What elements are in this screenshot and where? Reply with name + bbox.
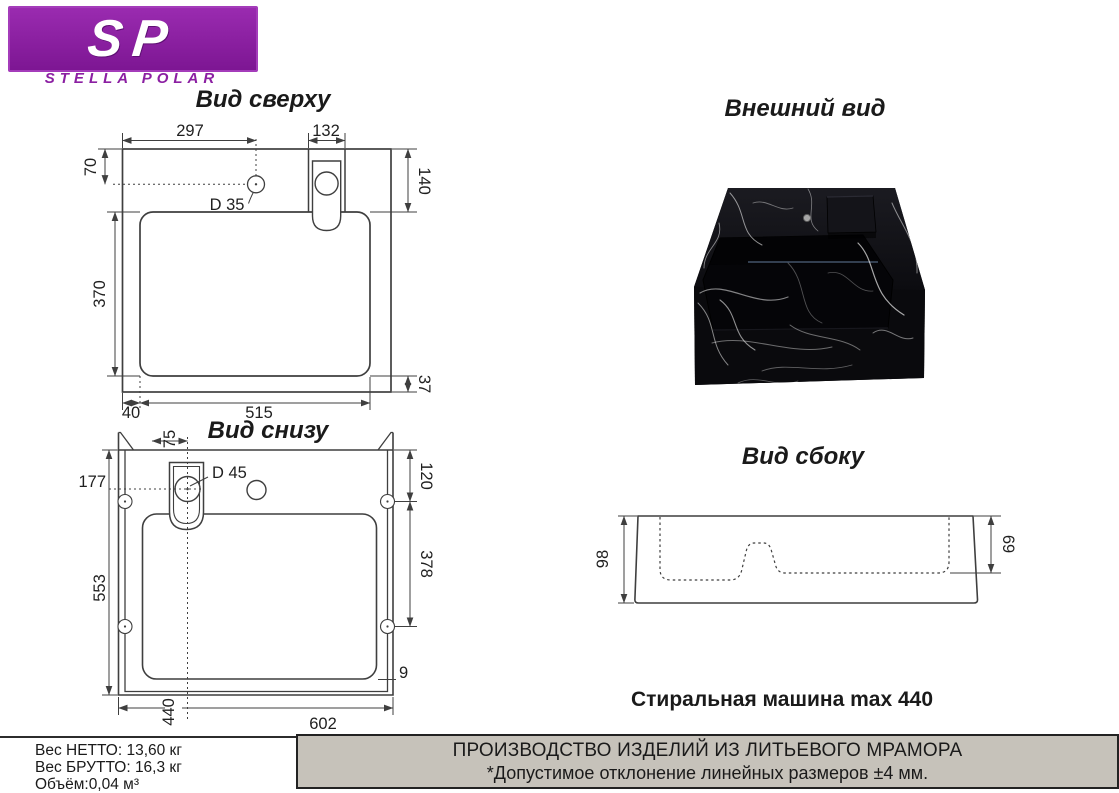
dim-37: 37 [415,375,433,393]
dim-140: 140 [415,167,433,195]
side-view-dimension-labels: 98 69 [594,535,1017,568]
dim-9: 9 [399,664,408,682]
dim-d35: D 35 [210,196,245,214]
sink-bottom-outer-edge [119,433,394,696]
side-view-dimension-lines [618,516,1001,603]
mounting-holes [118,495,395,634]
dim-120: 120 [417,462,435,490]
top-view-outline [123,149,392,392]
production-text: ПРОИЗВОДСТВО ИЗДЕЛИЙ ИЗ ЛИТЬЕВОГО МРАМОР… [453,740,963,762]
dim-553: 553 [91,574,109,602]
dim-378: 378 [417,550,435,578]
dim-515: 515 [245,404,273,422]
side-view-drawing: 98 69 [594,516,1017,603]
dim-177: 177 [78,473,106,491]
production-panel: ПРОИЗВОДСТВО ИЗДЕЛИЙ ИЗ ЛИТЬЕВОГО МРАМОР… [296,734,1119,789]
dim-297: 297 [176,122,204,140]
faucet-deck-shadow [828,232,876,239]
sink-photo [694,188,925,385]
basin-shadow [710,235,880,265]
volume: Объём:0,04 м³ [35,776,296,793]
technical-drawing-canvas: 297 132 70 140 370 37 40 515 D 35 [0,0,1119,789]
tolerance-text: *Допустимое отклонение линейных размеров… [487,763,928,784]
bottom-view-outline [118,433,395,696]
dim-98: 98 [594,550,612,568]
dim-40: 40 [122,404,140,422]
hole-d35-center [255,183,257,185]
dim-440: 440 [160,698,178,726]
basin-edge [140,212,370,376]
basin-depth-profile [660,517,949,580]
dim-75: 75 [161,430,179,448]
dim-70: 70 [82,158,100,176]
gross-weight: Вес БРУТТО: 16,3 кг [35,759,296,776]
dim-602: 602 [309,715,337,733]
top-view-dimension-labels: 297 132 70 140 370 37 40 515 D 35 [82,122,433,422]
side-profile-outline [635,516,978,603]
overflow-hole [247,481,266,500]
basin-footprint [143,514,377,679]
dim-132: 132 [312,122,340,140]
weight-info-block: Вес НЕТТО: 13,60 кг Вес БРУТТО: 16,3 кг … [0,736,296,789]
faucet-hole [315,172,338,195]
dim-69: 69 [999,535,1017,553]
faucet-deck [827,196,876,233]
bottom-view-dimension-labels: 75 120 378 177 D 45 553 9 440 602 [78,430,435,733]
bottom-view-drawing: 75 120 378 177 D 45 553 9 440 602 [78,430,435,733]
deck-drain-dot [803,214,810,221]
dim-d45: D 45 [212,464,247,482]
net-weight: Вес НЕТТО: 13,60 кг [35,742,296,759]
dim-370: 370 [91,280,109,308]
top-view-drawing: 297 132 70 140 370 37 40 515 D 35 [82,122,433,422]
